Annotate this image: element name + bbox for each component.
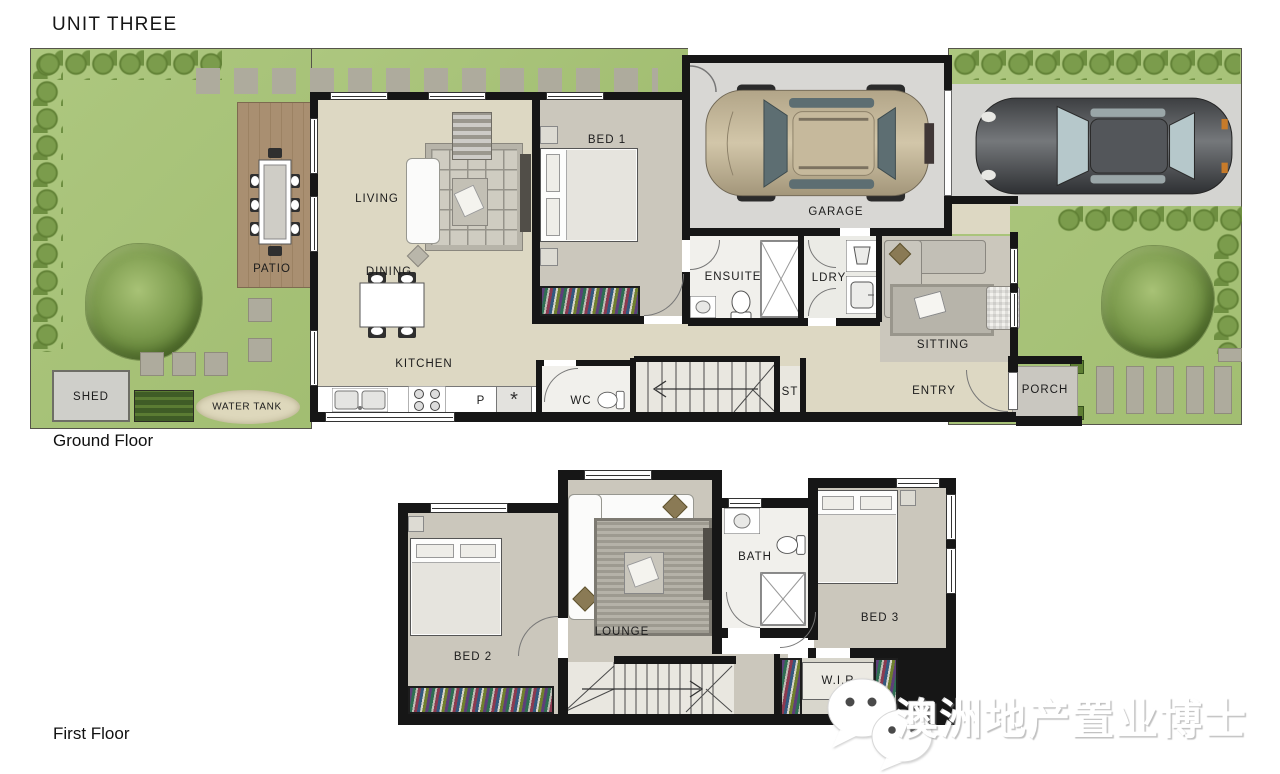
- wall: [774, 358, 780, 414]
- watermark-text: 澳洲地产置业博士: [896, 686, 1248, 747]
- cooktop: [408, 386, 446, 414]
- wall: [614, 656, 736, 664]
- wall: [682, 55, 950, 63]
- wc-toilet: [597, 387, 625, 413]
- wir-clothes: [780, 658, 802, 716]
- door-gap: [808, 318, 836, 326]
- bedside-table: [408, 516, 424, 532]
- wall: [398, 714, 900, 725]
- front-door: [1008, 372, 1018, 410]
- door-gap: [682, 240, 690, 272]
- living-sofa: [406, 158, 440, 244]
- pillow: [860, 496, 892, 510]
- window: [1010, 292, 1018, 328]
- room-label-lounge: LOUNGE: [595, 626, 650, 638]
- wall: [532, 98, 540, 320]
- wall: [682, 228, 950, 236]
- wall: [944, 196, 1018, 204]
- wall: [558, 470, 568, 723]
- room-label-pantry: P: [477, 395, 486, 407]
- window: [584, 470, 652, 480]
- pillow: [546, 154, 560, 192]
- bed3-door-arc: [780, 612, 816, 648]
- ground-stairs: [634, 362, 776, 414]
- path-stone: [1126, 366, 1144, 414]
- pillow: [416, 544, 454, 558]
- door-gap: [644, 316, 682, 324]
- wall: [634, 356, 780, 362]
- wall: [630, 358, 636, 414]
- patio-table-setting: [246, 146, 304, 258]
- tv-unit: [520, 154, 531, 232]
- window: [1010, 248, 1018, 284]
- ensuite-shower: [760, 240, 802, 318]
- wall: [798, 236, 804, 322]
- pillow: [460, 544, 496, 558]
- door-gap: [816, 648, 850, 658]
- ground-floor-caption: Ground Floor: [53, 431, 153, 451]
- garage-side-nook: [946, 204, 1010, 234]
- bedside-table: [540, 126, 558, 144]
- stepping-stone: [248, 298, 272, 322]
- first-floor-caption: First Floor: [53, 724, 130, 744]
- path-stone: [1214, 366, 1232, 414]
- stepping-stone: [248, 338, 272, 362]
- floor-plan-canvas: UNIT THREE: [0, 0, 1280, 774]
- path-stone: [1218, 348, 1242, 362]
- wall: [876, 236, 882, 322]
- wall: [800, 358, 806, 414]
- wall: [536, 366, 542, 414]
- window: [430, 503, 508, 513]
- window: [310, 118, 318, 174]
- area-label-shed: SHED: [73, 391, 109, 403]
- left-hedge: [33, 52, 63, 352]
- bath-vanity: [724, 508, 760, 534]
- room-label-dining: DINING: [366, 266, 412, 278]
- window: [310, 196, 318, 252]
- garden-bed: [134, 390, 194, 422]
- window: [330, 92, 388, 100]
- first-floor-stairs: [562, 662, 734, 714]
- room-label-entry: ENTRY: [912, 385, 956, 397]
- pillow: [822, 496, 854, 510]
- room-label-porch: PORCH: [1022, 384, 1069, 396]
- garage-door-opening: [944, 90, 952, 196]
- room-label-bed1: BED 1: [588, 134, 626, 146]
- right-hedge-top: [952, 50, 1240, 80]
- page-title: UNIT THREE: [52, 14, 177, 36]
- bedside-table: [540, 248, 558, 266]
- window: [546, 92, 604, 100]
- room-label-garage: GARAGE: [808, 206, 863, 218]
- window: [896, 478, 940, 488]
- wall: [1016, 356, 1082, 364]
- bath-toilet: [776, 532, 806, 558]
- area-label-patio: PATIO: [253, 263, 291, 275]
- washing-machine: [846, 276, 878, 314]
- path-stone: [1096, 366, 1114, 414]
- door-gap: [558, 618, 568, 658]
- window: [428, 92, 486, 100]
- bed-blanket: [566, 150, 636, 240]
- room-label-laundry: LDRY: [812, 272, 846, 284]
- window: [310, 330, 318, 386]
- fridge-space: *: [496, 386, 532, 414]
- window: [946, 494, 956, 540]
- kitchen-sink: [332, 388, 388, 412]
- right-hedge-side: [1214, 232, 1242, 354]
- dining-table-setting: [350, 270, 434, 340]
- top-left-hedge: [36, 50, 222, 80]
- bed-blanket: [412, 562, 500, 634]
- stepping-stone-row-top: [196, 68, 658, 94]
- room-label-bed3: BED 3: [861, 612, 899, 624]
- wall: [1016, 416, 1082, 426]
- room-label-ensuite: ENSUITE: [705, 271, 762, 283]
- room-label-storage: ST: [782, 386, 799, 398]
- door-gap: [728, 628, 760, 638]
- garden-tree-right: [1102, 246, 1214, 358]
- room-label-sitting: SITTING: [917, 339, 969, 351]
- wall: [774, 654, 780, 716]
- room-label-kitchen: KITCHEN: [395, 358, 452, 370]
- window: [946, 548, 956, 594]
- bed-blanket: [818, 514, 896, 582]
- sedan-car-top-view: [974, 94, 1234, 198]
- garden-tree-left: [86, 244, 202, 360]
- stepping-stone: [140, 352, 164, 376]
- door-gap: [544, 360, 576, 366]
- path-stone: [1156, 366, 1174, 414]
- room-label-bath: BATH: [738, 551, 772, 563]
- media-unit: [452, 112, 492, 160]
- bedside-table: [900, 490, 916, 506]
- ensuite-basin: [690, 296, 716, 318]
- path-stone: [1186, 366, 1204, 414]
- bed2-robe: [408, 686, 554, 714]
- bed1-robe: [540, 286, 640, 316]
- wall: [682, 55, 690, 324]
- window: [728, 498, 762, 508]
- wall: [688, 318, 880, 326]
- room-label-living: LIVING: [355, 193, 399, 205]
- area-label-water-tank: WATER TANK: [212, 402, 282, 413]
- laundry-tub: [846, 240, 878, 272]
- stepping-stone: [204, 352, 228, 376]
- wall: [944, 55, 952, 90]
- right-hedge-mid: [1056, 206, 1242, 234]
- room-label-wc: WC: [570, 395, 591, 407]
- room-label-bed2: BED 2: [454, 651, 492, 663]
- door-gap: [840, 228, 870, 236]
- kitchen-window: [325, 412, 455, 422]
- tv-unit: [703, 528, 712, 600]
- stepping-stone: [172, 352, 196, 376]
- wall: [398, 503, 408, 724]
- pillow: [546, 198, 560, 236]
- suv-car-top-view: [704, 82, 936, 204]
